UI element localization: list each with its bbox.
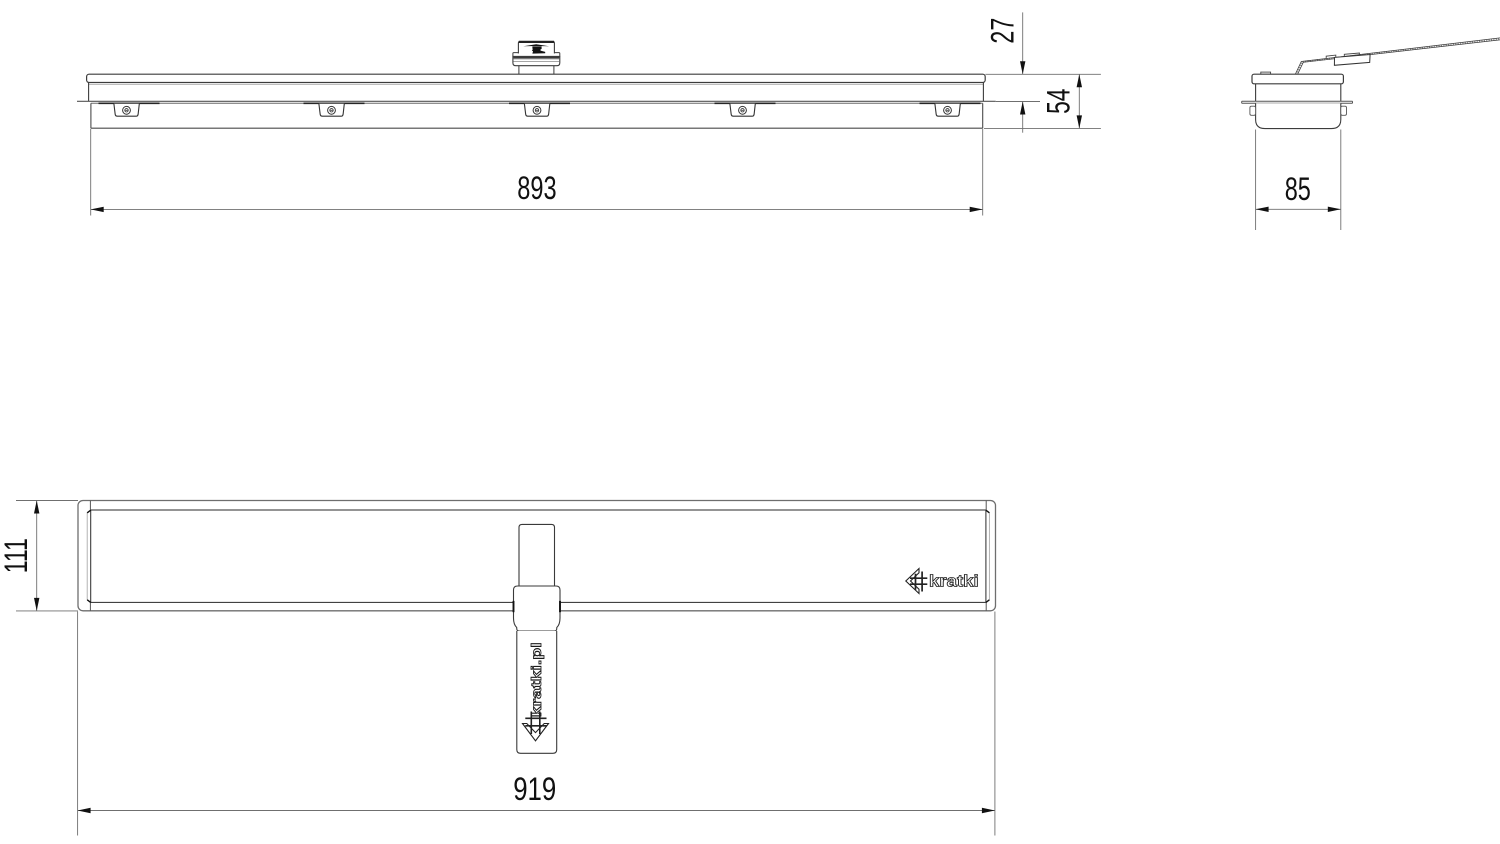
svg-text:27: 27 [984, 18, 1020, 44]
svg-text:111: 111 [0, 538, 34, 573]
svg-text:54: 54 [1041, 89, 1077, 114]
svg-text:893: 893 [517, 170, 556, 206]
svg-text:85: 85 [1285, 171, 1311, 207]
svg-text:919: 919 [513, 771, 556, 807]
svg-text:kratki: kratki [929, 572, 979, 591]
svg-text:kratki.pl: kratki.pl [528, 642, 544, 717]
